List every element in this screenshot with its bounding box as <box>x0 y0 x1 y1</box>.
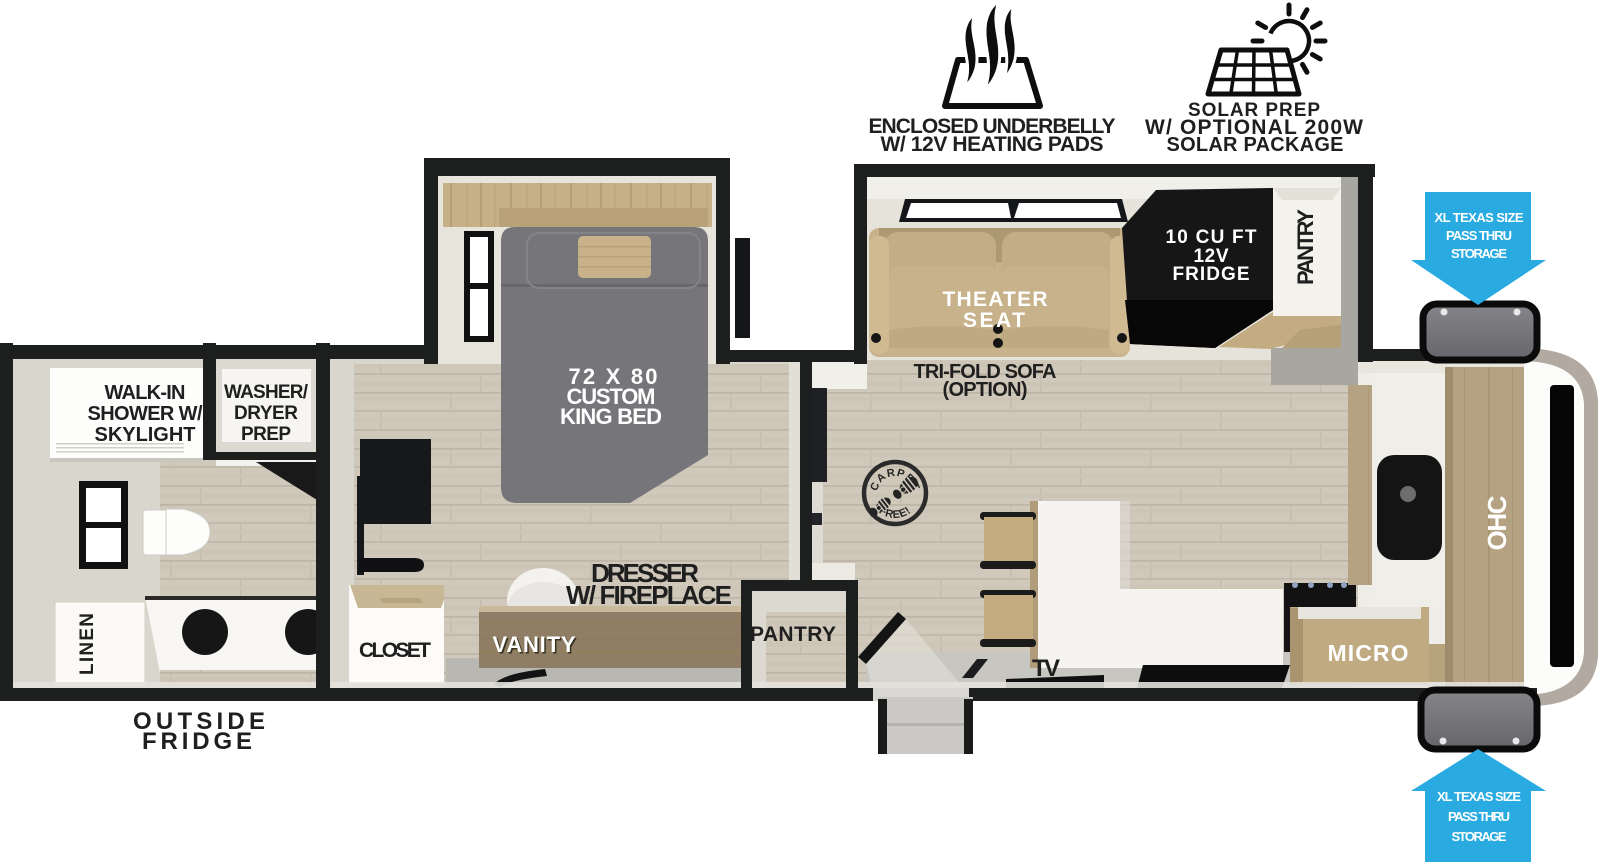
svg-text:STORAGE: STORAGE <box>1452 829 1507 844</box>
svg-text:DRYER: DRYER <box>234 403 298 424</box>
svg-text:PREP: PREP <box>241 424 291 445</box>
svg-text:VANITY: VANITY <box>493 632 576 657</box>
svg-text:W/ 12V HEATING PADS: W/ 12V HEATING PADS <box>881 133 1104 156</box>
svg-text:SHOWER W/: SHOWER W/ <box>88 403 203 425</box>
svg-text:THEATER: THEATER <box>943 288 1048 311</box>
svg-text:FRIDGE: FRIDGE <box>1173 264 1250 285</box>
svg-text:LINEN: LINEN <box>77 613 98 675</box>
svg-text:(OPTION): (OPTION) <box>943 379 1028 401</box>
svg-text:CLOSET: CLOSET <box>359 639 431 662</box>
svg-text:WASHER/: WASHER/ <box>224 382 309 403</box>
svg-text:OHC: OHC <box>1482 495 1512 550</box>
svg-text:KING BED: KING BED <box>560 404 662 429</box>
svg-text:STORAGE: STORAGE <box>1451 246 1507 261</box>
svg-text:PASS THRU: PASS THRU <box>1446 228 1512 243</box>
svg-text:MICRO: MICRO <box>1328 640 1409 666</box>
svg-text:XL TEXAS SIZE: XL TEXAS SIZE <box>1435 210 1524 225</box>
svg-text:PASS THRU: PASS THRU <box>1448 809 1510 824</box>
svg-text:TV: TV <box>1032 655 1060 682</box>
svg-text:PANTRY: PANTRY <box>1293 209 1318 285</box>
svg-text:PANTRY: PANTRY <box>750 623 836 646</box>
svg-text:XL TEXAS SIZE: XL TEXAS SIZE <box>1437 789 1521 804</box>
svg-text:WALK-IN: WALK-IN <box>105 382 186 404</box>
svg-text:10 CU FT: 10 CU FT <box>1166 227 1257 248</box>
svg-text:SOLAR PACKAGE: SOLAR PACKAGE <box>1167 134 1344 156</box>
svg-text:W/ FIREPLACE: W/ FIREPLACE <box>566 580 732 610</box>
svg-text:SKYLIGHT: SKYLIGHT <box>95 424 196 446</box>
